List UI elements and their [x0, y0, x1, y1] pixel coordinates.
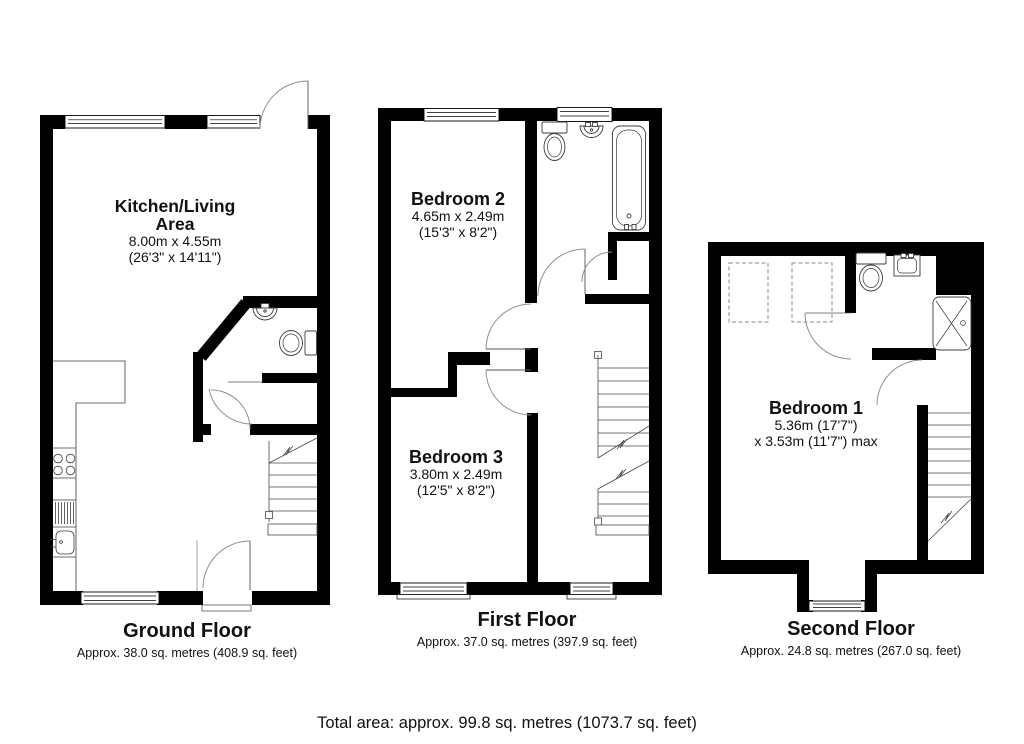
- window-icon: [207, 116, 260, 129]
- window-icon: [65, 116, 165, 129]
- room-dims-metric: 3.80m x 2.49m: [356, 467, 556, 483]
- room-name: Kitchen/Living: [55, 197, 295, 215]
- room-name: Bedroom 1: [716, 399, 916, 418]
- door-swing-icon: [202, 541, 251, 611]
- room-name: Bedroom 3: [356, 448, 556, 467]
- first-floor-plan: [378, 108, 662, 600]
- first-floor-windows: [397, 108, 616, 600]
- floor-title: Ground Floor: [37, 620, 337, 642]
- floor-title: First Floor: [377, 609, 677, 631]
- drainer-icon: [56, 502, 74, 524]
- door-swing-icon: [486, 370, 531, 415]
- ground-floor-stairs: [266, 438, 318, 535]
- floor-area: Approx. 38.0 sq. metres (408.9 sq. feet): [37, 646, 337, 660]
- floor-area: Approx. 24.8 sq. metres (267.0 sq. feet): [701, 644, 1001, 658]
- bedroom3-label: Bedroom 3 3.80m x 2.49m (12'5" x 8'2"): [356, 448, 556, 499]
- sink-icon: [894, 254, 920, 277]
- first-floor-doors: [486, 249, 612, 415]
- kitchen-counter: [50, 361, 125, 591]
- first-floor-stairs: [595, 352, 650, 536]
- window-icon: [557, 108, 612, 122]
- basin-icon: [580, 123, 603, 138]
- toilet-icon: [856, 253, 886, 291]
- floor-title: Second Floor: [701, 618, 1001, 640]
- room-dims-imperial: (15'3" x 8'2"): [358, 225, 558, 241]
- ground-floor-plan: [40, 81, 330, 611]
- room-dims-line1: 5.36m (17'7"): [716, 418, 916, 434]
- door-swing-icon: [209, 389, 252, 424]
- room-dims-imperial: (26'3" x 14'11"): [55, 250, 295, 266]
- window-icon: [424, 109, 499, 122]
- door-swing-icon: [538, 249, 585, 296]
- door-swing-icon: [805, 313, 851, 359]
- room-name: Bedroom 2: [358, 190, 558, 209]
- shower-icon: [933, 297, 971, 350]
- door-swing-icon: [486, 304, 531, 349]
- room-dims-metric: 8.00m x 4.55m: [55, 234, 295, 250]
- kitchen-living-label: Kitchen/Living Area 8.00m x 4.55m (26'3"…: [55, 197, 295, 265]
- ground-floor-windows: [65, 116, 260, 605]
- second-floor-stairs: [928, 413, 971, 541]
- second-floor-caption: Second Floor Approx. 24.8 sq. metres (26…: [701, 618, 1001, 658]
- door-swing-icon: [582, 252, 612, 282]
- bathtub-icon: [613, 126, 646, 230]
- room-dims-line2: x 3.53m (11'7") max: [716, 434, 916, 450]
- gf-wc-fixtures: [253, 304, 317, 356]
- toilet-icon: [280, 331, 317, 356]
- ground-floor-caption: Ground Floor Approx. 38.0 sq. metres (40…: [37, 620, 337, 660]
- room-dims-imperial: (12'5" x 8'2"): [356, 483, 556, 499]
- hob-icon: [54, 454, 75, 475]
- window-icon: [81, 592, 159, 604]
- window-icon: [567, 583, 616, 599]
- floor-area: Approx. 37.0 sq. metres (397.9 sq. feet): [377, 635, 677, 649]
- door-swing-icon: [260, 81, 308, 129]
- room-name: Area: [55, 215, 295, 233]
- total-area-text: Total area: approx. 99.8 sq. metres (107…: [212, 714, 802, 733]
- bedroom1-label: Bedroom 1 5.36m (17'7") x 3.53m (11'7") …: [716, 399, 916, 450]
- first-floor-caption: First Floor Approx. 37.0 sq. metres (397…: [377, 609, 677, 649]
- bedroom2-label: Bedroom 2 4.65m x 2.49m (15'3" x 8'2"): [358, 190, 558, 241]
- window-icon: [809, 601, 865, 611]
- window-icon: [397, 583, 470, 599]
- toilet-icon: [542, 122, 567, 161]
- kitchen-sink-icon: [50, 531, 74, 554]
- skylight-icon: [729, 263, 768, 322]
- room-dims-metric: 4.65m x 2.49m: [358, 209, 558, 225]
